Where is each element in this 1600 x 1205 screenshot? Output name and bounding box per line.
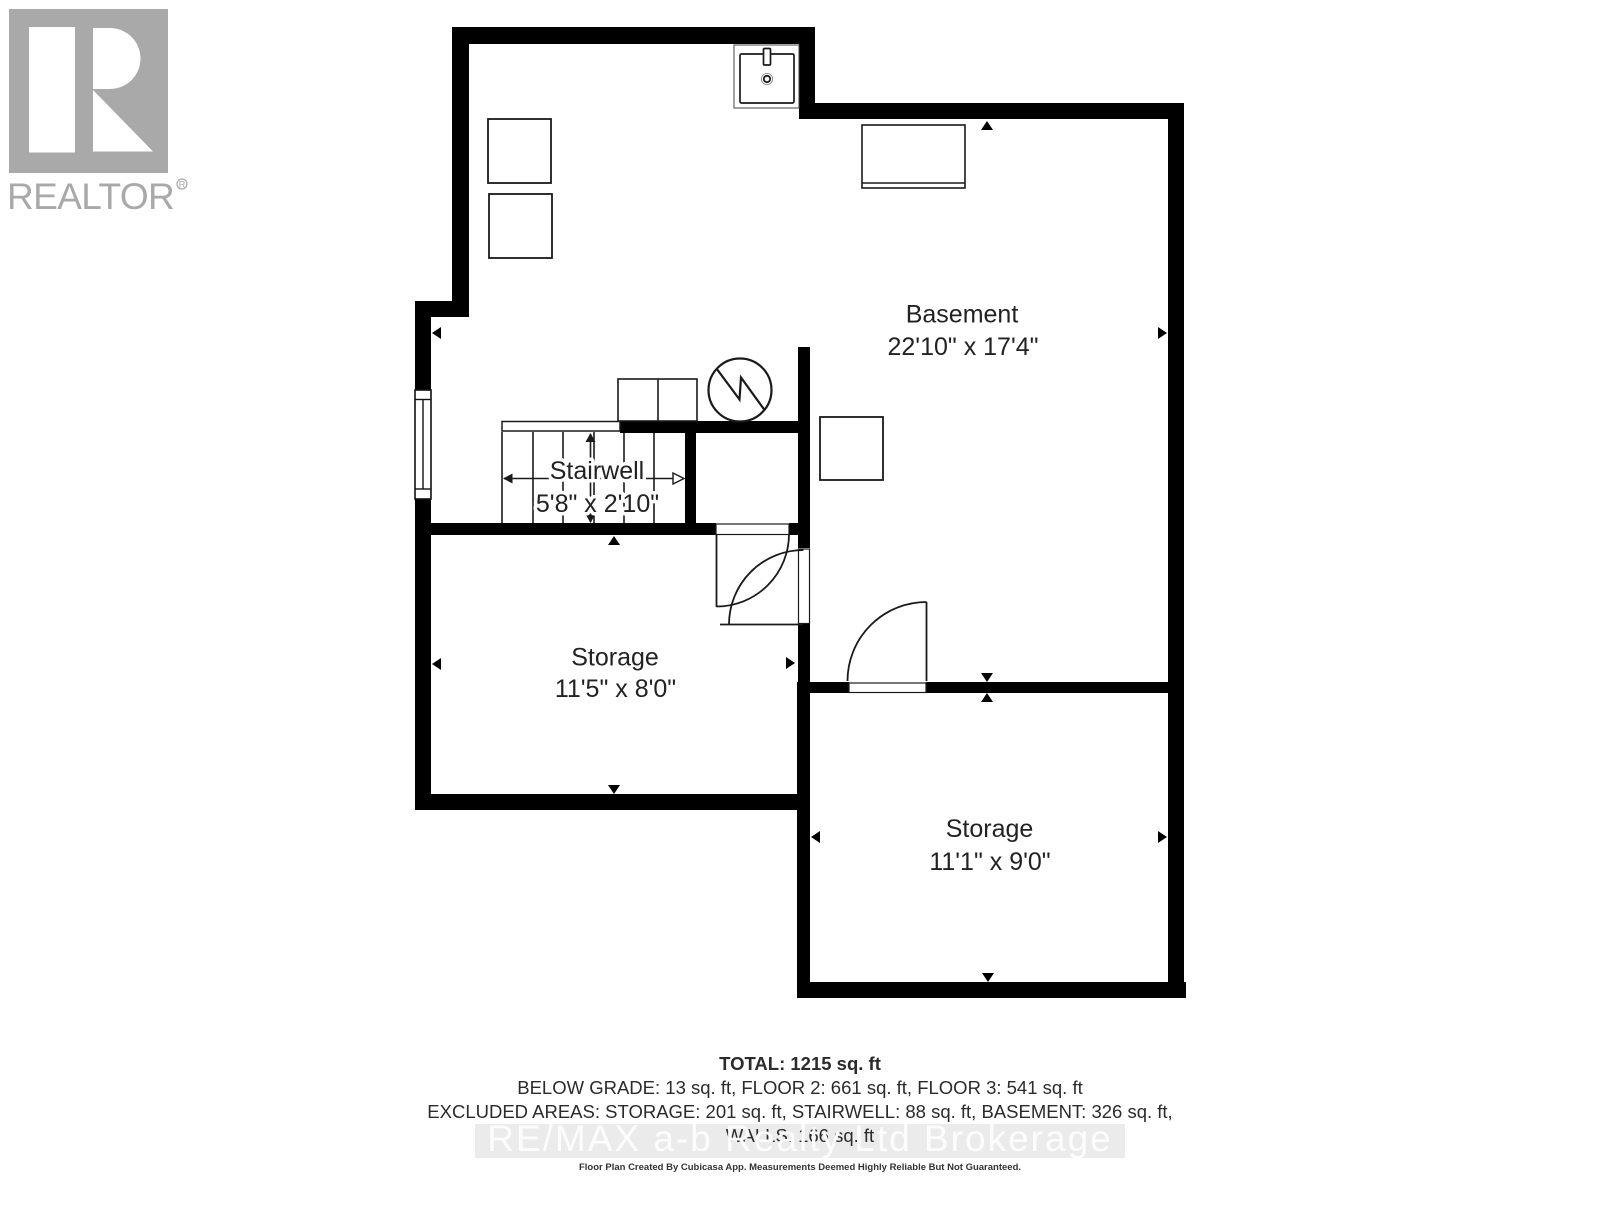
svg-text:Floor Plan Created By Cubicasa: Floor Plan Created By Cubicasa App. Meas… [579,1162,1021,1173]
svg-text:Storage: Storage [946,815,1034,843]
svg-text:11'1" x 9'0": 11'1" x 9'0" [929,848,1050,876]
svg-text:Stairwell: Stairwell [550,457,644,485]
svg-text:Storage: Storage [571,644,659,672]
svg-text:BELOW GRADE: 13 sq. ft, FLOOR: BELOW GRADE: 13 sq. ft, FLOOR 2: 661 sq.… [517,1077,1083,1098]
svg-text:22'10" x 17'4": 22'10" x 17'4" [887,333,1038,361]
svg-text:REALTOR: REALTOR [7,176,174,217]
svg-text:11'5" x 8'0": 11'5" x 8'0" [555,675,676,703]
svg-text:TOTAL: 1215 sq. ft: TOTAL: 1215 sq. ft [719,1053,881,1074]
svg-text:Basement: Basement [906,301,1019,329]
svg-text:R: R [179,180,186,190]
svg-text:RE/MAX a-b Realty Ltd Brokerag: RE/MAX a-b Realty Ltd Brokerage [487,1118,1112,1159]
svg-text:5'8" x 2'10": 5'8" x 2'10" [536,490,659,518]
